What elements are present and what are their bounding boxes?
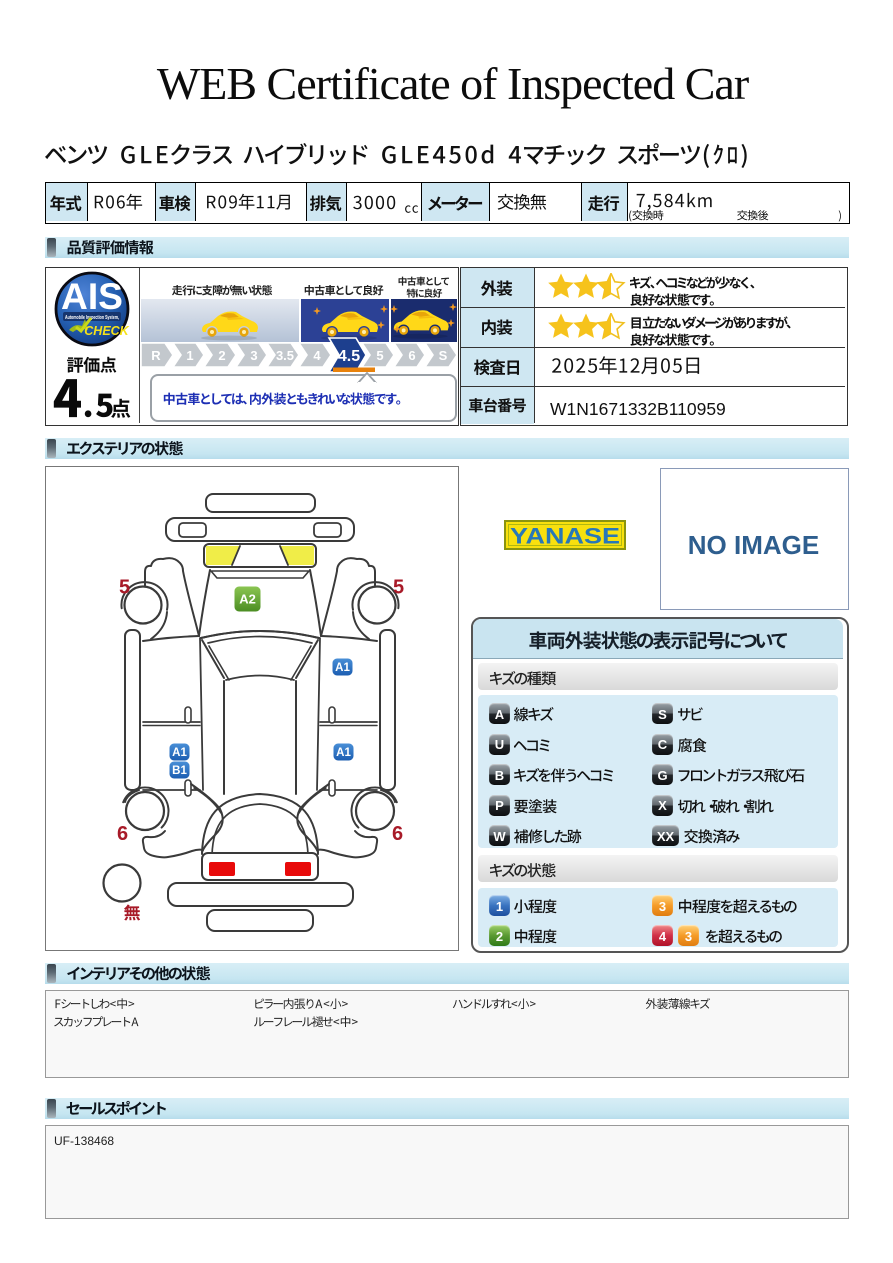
svg-text:6: 6 bbox=[117, 823, 128, 845]
svg-text:6: 6 bbox=[408, 348, 415, 363]
svg-text:A2: A2 bbox=[239, 592, 256, 607]
svg-text:3: 3 bbox=[250, 348, 257, 363]
svg-text:S: S bbox=[439, 348, 448, 363]
svg-text:A1: A1 bbox=[336, 747, 351, 759]
svg-text:Automobile Inspection System,: Automobile Inspection System, bbox=[65, 315, 119, 321]
svg-text:1: 1 bbox=[186, 348, 193, 363]
svg-text:4: 4 bbox=[313, 348, 321, 363]
svg-text:A1: A1 bbox=[172, 747, 187, 759]
svg-text:AIS: AIS bbox=[61, 276, 123, 317]
svg-text:2: 2 bbox=[218, 348, 225, 363]
svg-text:5: 5 bbox=[119, 577, 130, 599]
svg-text:4.5: 4.5 bbox=[338, 348, 360, 365]
svg-text:B1: B1 bbox=[172, 765, 187, 777]
svg-text:YANASE: YANASE bbox=[510, 524, 620, 549]
svg-text:A1: A1 bbox=[335, 662, 350, 674]
svg-text:6: 6 bbox=[392, 823, 403, 845]
svg-text:3.5: 3.5 bbox=[276, 348, 294, 363]
svg-text:R: R bbox=[151, 348, 161, 363]
svg-text:5: 5 bbox=[393, 577, 404, 599]
svg-text:5: 5 bbox=[376, 348, 383, 363]
svg-text:CHECK: CHECK bbox=[84, 324, 129, 338]
